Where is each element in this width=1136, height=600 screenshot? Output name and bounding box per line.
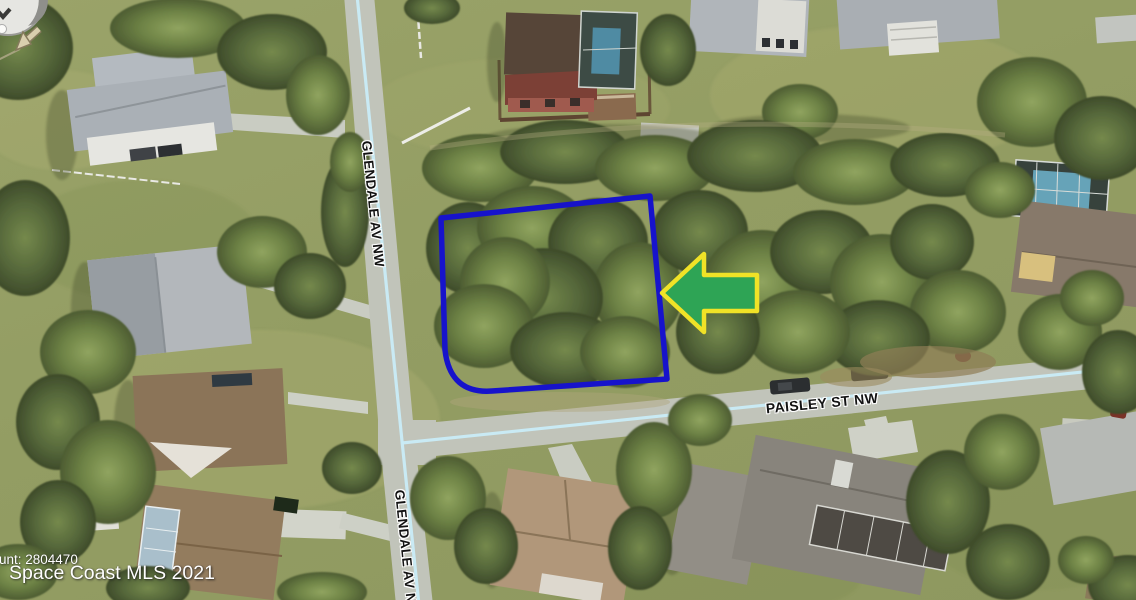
house <box>688 0 809 57</box>
aerial-map: GLENDALE AV NW GLENDALE AV NW PAISLEY ST… <box>0 0 1136 600</box>
house <box>67 46 233 166</box>
satellite-imagery <box>0 0 1136 600</box>
watermark-mls-attribution: Space Coast MLS 2021 <box>9 562 215 585</box>
house <box>133 368 288 478</box>
